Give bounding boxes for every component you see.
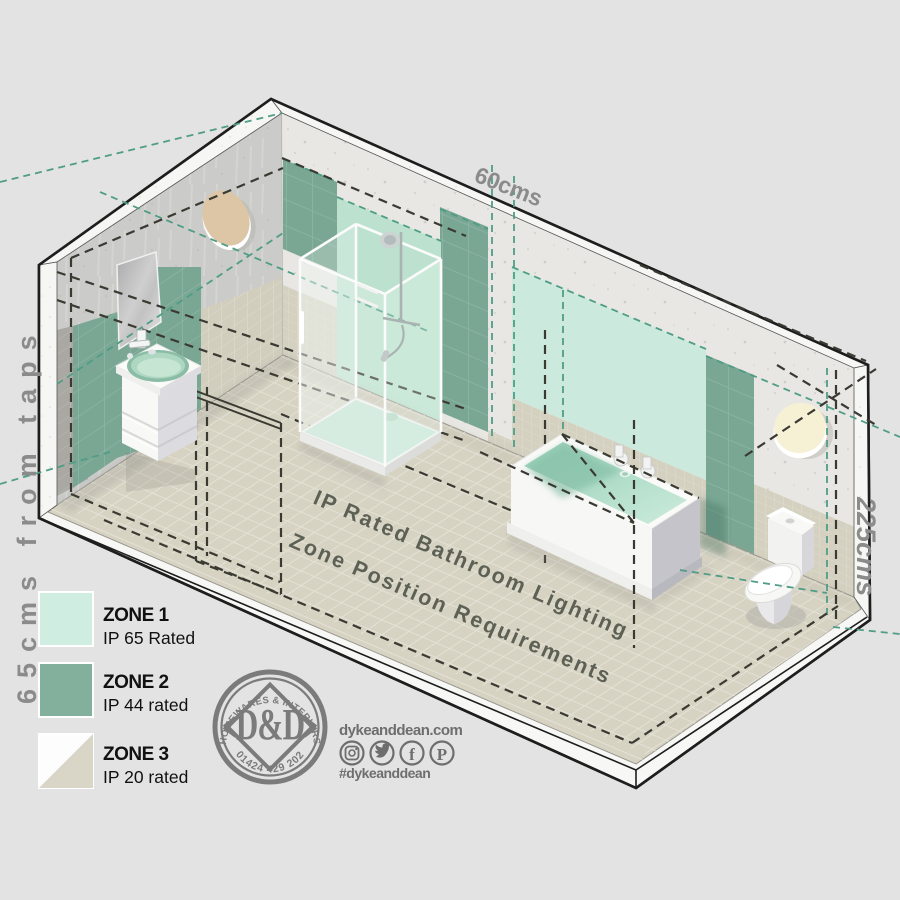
svg-text:IP 44 rated: IP 44 rated — [103, 695, 188, 715]
svg-text:f: f — [409, 745, 415, 764]
svg-text:IP 65 Rated: IP 65 Rated — [103, 628, 195, 648]
svg-text:ZONE 2: ZONE 2 — [103, 672, 169, 693]
svg-text:IP 20 rated: IP 20 rated — [103, 767, 188, 787]
svg-text:dykeanddean.com: dykeanddean.com — [339, 722, 463, 739]
svg-text:P: P — [437, 745, 447, 764]
svg-text:#dykeanddean: #dykeanddean — [339, 765, 430, 781]
svg-text:65cms from taps: 65cms from taps — [12, 324, 42, 704]
svg-text:ZONE 3: ZONE 3 — [103, 744, 169, 765]
svg-text:ZONE 1: ZONE 1 — [103, 605, 170, 626]
svg-text:225cms: 225cms — [851, 496, 881, 596]
